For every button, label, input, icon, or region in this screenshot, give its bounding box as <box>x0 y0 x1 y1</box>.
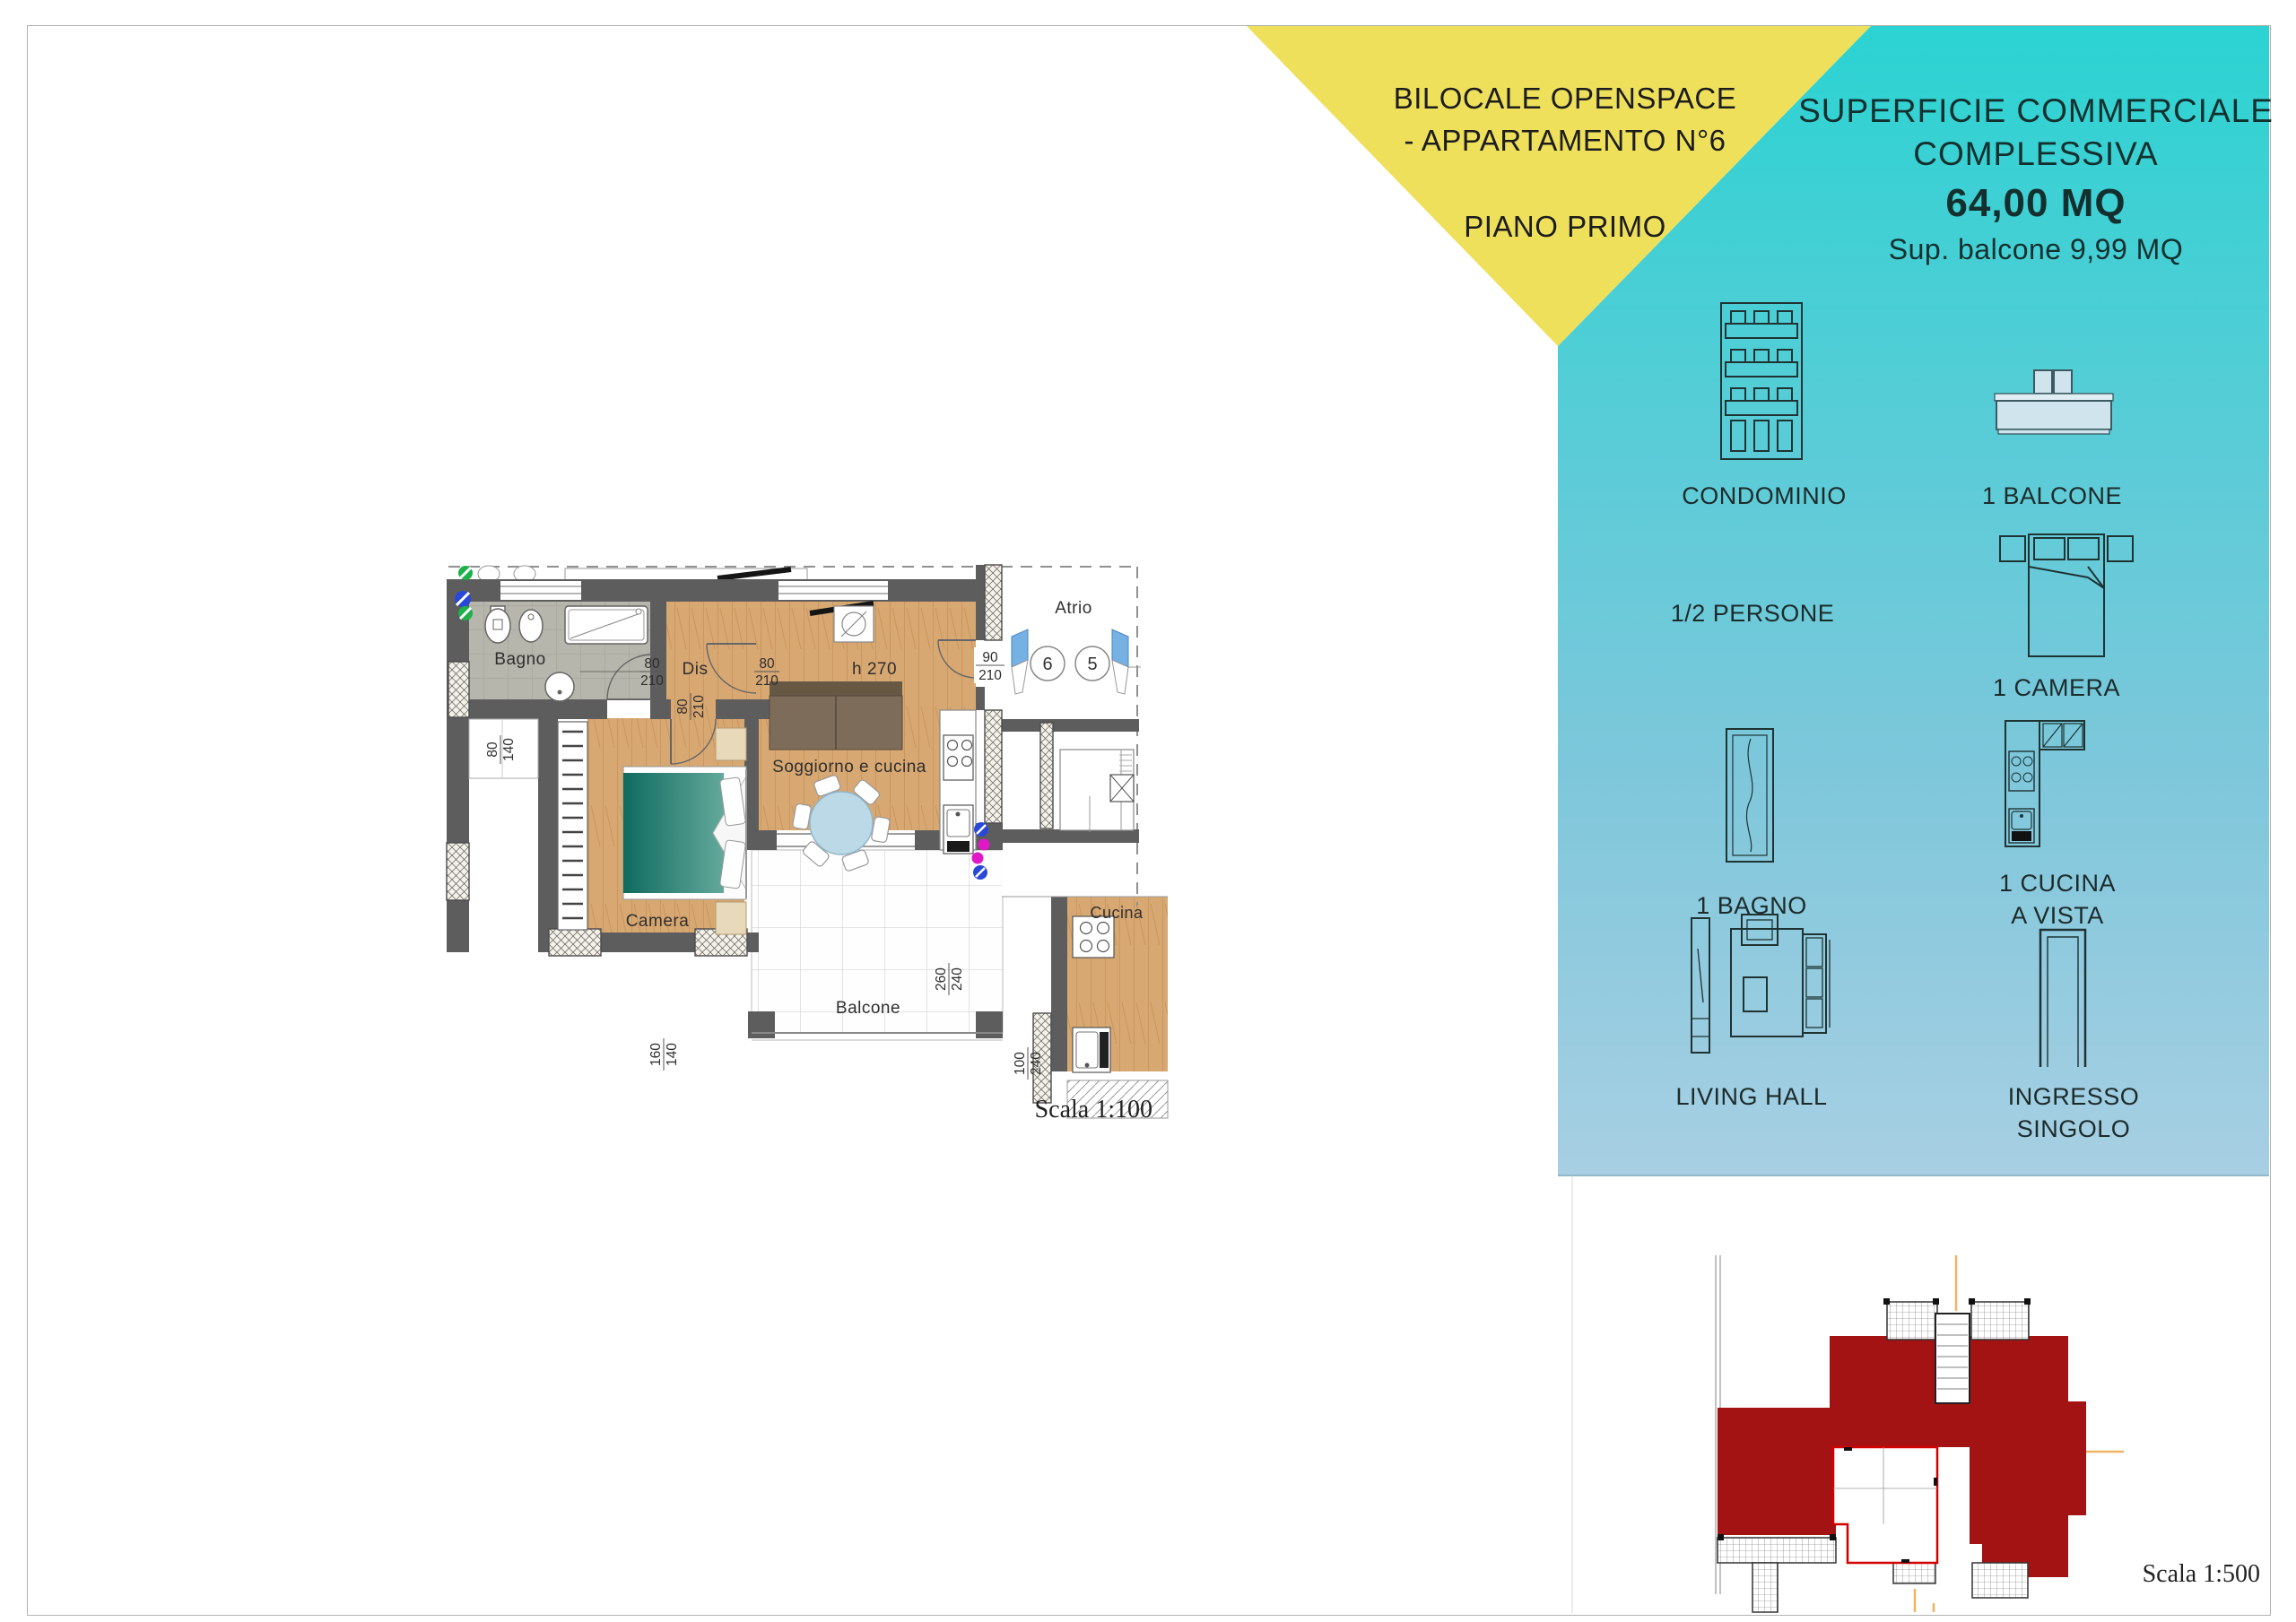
cucina-icon <box>2002 717 2088 850</box>
room-label-balcone: Balcone <box>836 999 900 1018</box>
floorplan-sheet: BILOCALE OPENSPACE - APPARTAMENTO N°6 PI… <box>0 0 2296 1622</box>
unit-number-5: 5 <box>1087 655 1097 674</box>
svg-text:80: 80 <box>675 698 691 715</box>
room-label-bagno: Bagno <box>494 650 545 669</box>
ceiling-height-label: h 270 <box>852 660 897 679</box>
apartment-title: BILOCALE OPENSPACE - APPARTAMENTO N°6 <box>1372 77 1758 161</box>
feature-label-condominio: CONDOMINIO <box>1665 480 1863 512</box>
condominio-icon <box>1718 300 1805 462</box>
svg-text:210: 210 <box>691 695 707 718</box>
svg-text:240: 240 <box>1029 1052 1044 1075</box>
adjacent-bedroom <box>1060 750 1134 830</box>
feature-label-living: LIVING HALL <box>1653 1080 1850 1113</box>
svg-text:210: 210 <box>978 668 1002 683</box>
extractor-symbol <box>834 606 874 642</box>
surface-title-line2: COMPLESSIVA <box>1798 133 2274 176</box>
room-label-dis: Dis <box>683 660 709 679</box>
dim-cucina-window: 100 240 <box>1013 1047 1044 1080</box>
floor-plan: 6 5 Bagno Dis Camera Soggiorno e cucina … <box>430 538 1175 1148</box>
balcony-surface-note: Sup. balcone 9,99 MQ <box>1798 233 2274 266</box>
feature-label-camera: 1 CAMERA <box>1958 672 2155 704</box>
apartment-title-line2: - APPARTAMENTO N°6 <box>1372 119 1758 161</box>
svg-text:140: 140 <box>501 738 517 761</box>
svg-text:210: 210 <box>755 673 778 689</box>
kitchen-counter <box>940 710 976 854</box>
svg-text:80: 80 <box>485 742 500 758</box>
surface-title-line1: SUPERFICIE COMMERCIALE <box>1798 90 2274 133</box>
balcone-icon <box>1987 363 2120 439</box>
svg-text:80: 80 <box>759 656 775 672</box>
room-label-atrio: Atrio <box>1055 599 1092 618</box>
svg-text:160: 160 <box>648 1043 664 1066</box>
living-icon <box>1688 913 1837 1067</box>
feature-label-cucina: 1 CUCINA A VISTA <box>1959 867 2156 932</box>
camera-icon <box>1998 531 2135 658</box>
room-label-soggiorno: Soggiorno e cucina <box>772 758 926 776</box>
svg-text:100: 100 <box>1013 1052 1028 1075</box>
unit-number-6: 6 <box>1042 655 1052 674</box>
feature-label-persone: 1/2 PERSONE <box>1654 597 1851 629</box>
site-plan <box>1561 1193 2278 1614</box>
svg-text:90: 90 <box>982 650 998 665</box>
floor-subtitle: PIANO PRIMO <box>1372 210 1758 244</box>
apartment-title-line1: BILOCALE OPENSPACE <box>1372 77 1758 119</box>
landing-floor <box>1002 843 1168 897</box>
site-stairwell <box>1935 1314 1970 1403</box>
room-label-cucina-adjacent: Cucina <box>1090 904 1144 922</box>
svg-text:260: 260 <box>934 967 949 991</box>
ingresso-icon <box>2036 926 2090 1070</box>
dim-camera-window: 160 140 <box>648 1038 680 1071</box>
svg-text:140: 140 <box>665 1043 680 1066</box>
feature-label-balcone: 1 BALCONE <box>1953 480 2151 512</box>
scale-label-500: Scala 1:500 <box>2036 1560 2260 1589</box>
feature-label-ingresso: INGRESSO SINGOLO <box>1961 1080 2186 1145</box>
dim-entrance-door: 90 210 <box>974 647 1006 683</box>
svg-text:80: 80 <box>644 656 660 672</box>
room-label-camera: Camera <box>626 912 690 931</box>
feature-label-cucina-line1: 1 CUCINA <box>1959 867 2156 899</box>
surface-summary: SUPERFICIE COMMERCIALE COMPLESSIVA 64,00… <box>1798 90 2274 266</box>
wardrobe <box>558 722 587 930</box>
svg-text:210: 210 <box>640 673 664 689</box>
surface-area-value: 64,00 MQ <box>1798 181 2274 226</box>
dim-soggiorno-window: 260 240 <box>934 963 965 995</box>
bagno-icon <box>1724 726 1776 864</box>
svg-text:240: 240 <box>950 967 965 991</box>
site-highlighted-unit <box>1833 1447 1937 1563</box>
scale-label-100: Scala 1:100 <box>928 1096 1152 1124</box>
sofa <box>770 681 902 750</box>
